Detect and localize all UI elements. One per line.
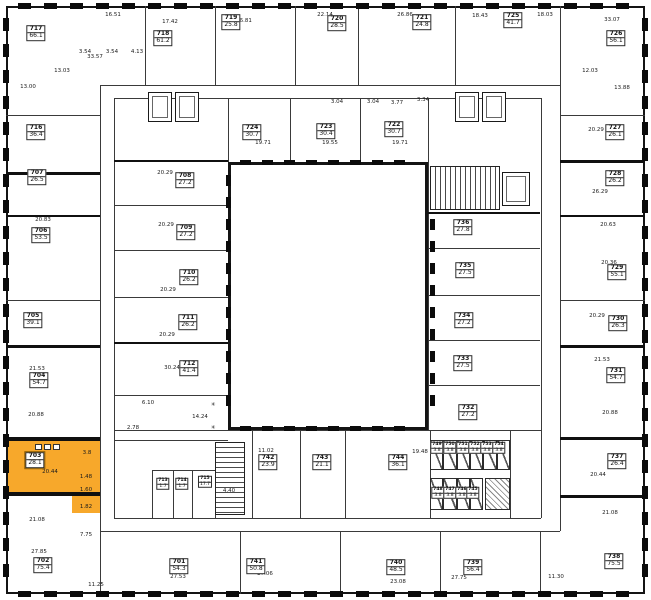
wall <box>428 212 540 214</box>
window-tick <box>382 3 395 9</box>
unit-area: 3.8 <box>431 449 442 454</box>
unit-area: 3.8 <box>444 494 455 499</box>
room-area-text: 4.40 <box>223 488 235 494</box>
unit-area: 41.4 <box>180 369 197 375</box>
window-tick <box>642 226 648 239</box>
window-tick <box>240 160 251 165</box>
unit-area: 26.2 <box>179 323 196 329</box>
window-tick <box>642 538 648 551</box>
room-area-text: 2.78 <box>127 425 139 431</box>
window-tick <box>642 382 648 395</box>
wall <box>114 297 228 298</box>
window-tick <box>642 460 648 473</box>
window-tick <box>430 351 435 362</box>
unit-label-717[interactable]: 71766.1 <box>26 25 45 41</box>
unit-label-722[interactable]: 72230.7 <box>384 121 403 137</box>
room-area-text: 26.86 <box>397 12 413 18</box>
window-tick <box>372 160 383 165</box>
window-tick <box>122 3 135 9</box>
unit-label-723[interactable]: 72330.4 <box>316 123 335 139</box>
window-tick <box>148 3 161 9</box>
window-tick <box>3 226 9 239</box>
kitchen-fixture <box>53 444 60 450</box>
window-tick <box>642 434 648 447</box>
window-tick <box>3 330 9 343</box>
unit-label-702[interactable]: 70275.4 <box>33 557 52 573</box>
wall <box>428 98 429 162</box>
window-tick <box>226 263 231 274</box>
unit-label-710[interactable]: 71026.2 <box>179 269 198 285</box>
window-tick <box>122 591 135 597</box>
window-tick <box>278 3 291 9</box>
unit-label-739[interactable]: 73956.4 <box>463 559 482 575</box>
room-area-text: 17.42 <box>162 19 178 25</box>
unit-area: 56.4 <box>464 568 481 574</box>
wall <box>100 531 560 532</box>
unit-area: 61.2 <box>154 39 171 45</box>
unit-label-732[interactable]: 73227.2 <box>458 404 477 420</box>
unit-label-729[interactable]: 72955.1 <box>607 264 626 280</box>
window-tick <box>486 591 499 597</box>
wall <box>114 160 228 162</box>
wall <box>428 248 540 249</box>
wall <box>290 98 291 162</box>
room-area-text: 3.77 <box>391 100 403 106</box>
room-area-text: 20.29 <box>589 313 605 319</box>
window-tick <box>328 160 339 165</box>
elevator <box>455 92 479 122</box>
unit-area: 75.5 <box>605 562 622 568</box>
room-area-text: 27.53 <box>170 574 186 580</box>
unit-area: 26.5 <box>28 178 45 184</box>
unit-area: 66.1 <box>27 34 44 40</box>
unit-label-707[interactable]: 70726.5 <box>27 169 46 185</box>
unit-area: 75.4 <box>34 566 51 572</box>
unit-label-721[interactable]: 72124.8 <box>412 14 431 30</box>
wall <box>340 531 341 594</box>
unit-area: 36.1 <box>389 463 406 469</box>
unit-area: 27.2 <box>455 321 472 327</box>
unit-label-743[interactable]: 74321.1 <box>312 454 331 470</box>
window-tick <box>642 408 648 421</box>
wall <box>428 295 540 296</box>
window-tick <box>226 373 231 384</box>
room-area-text: 20.83 <box>35 217 51 223</box>
window-tick <box>356 3 369 9</box>
window-tick <box>3 44 9 57</box>
unit-area: 50.8 <box>247 567 264 573</box>
window-tick <box>616 591 629 597</box>
wall <box>358 6 359 85</box>
unit-area: 26.3 <box>609 324 626 330</box>
unit-area: 21.1 <box>313 463 330 469</box>
window-tick <box>3 304 9 317</box>
window-tick <box>3 252 9 265</box>
window-tick <box>3 278 9 291</box>
unit-area: 1.7 <box>176 485 187 490</box>
unit-label-715[interactable]: 71517.7 <box>198 476 212 488</box>
window-tick <box>430 219 435 230</box>
unit-label-709[interactable]: 70927.2 <box>176 224 195 240</box>
unit-area: 26.2 <box>606 179 623 185</box>
room-area-text: 18.03 <box>537 12 553 18</box>
window-tick <box>642 96 648 109</box>
window-tick <box>226 395 231 406</box>
wall <box>560 160 645 163</box>
window-tick <box>226 591 239 597</box>
window-tick <box>430 395 435 406</box>
unit-area: 3.8 <box>481 449 492 454</box>
room-area-text: 3.54 <box>79 49 91 55</box>
window-tick <box>460 3 473 9</box>
window-tick <box>642 200 648 213</box>
room-area-text: 3.04 <box>331 99 343 105</box>
unit-area: 27.8 <box>454 228 471 234</box>
wall <box>428 340 540 341</box>
window-tick <box>538 591 551 597</box>
window-tick <box>252 591 265 597</box>
wall <box>145 6 146 85</box>
unit-area: 54.7 <box>607 376 624 382</box>
room-area-text: 21.08 <box>29 517 45 523</box>
unit-area: 3.8 <box>444 449 455 454</box>
wall <box>152 470 153 518</box>
unit-label-713[interactable]: 7131.7 <box>156 478 169 490</box>
unit-label-705[interactable]: 70539.1 <box>23 312 42 328</box>
window-tick <box>226 285 231 296</box>
room-area-text: 3.54 <box>106 49 118 55</box>
window-tick <box>278 591 291 597</box>
window-tick <box>70 591 83 597</box>
window-tick <box>3 382 9 395</box>
unit-label-725[interactable]: 72541.7 <box>503 12 522 28</box>
window-tick <box>430 285 435 296</box>
room-area-text: 11.30 <box>548 574 564 580</box>
window-tick <box>226 175 231 186</box>
window-tick <box>226 351 231 362</box>
window-tick <box>590 3 603 9</box>
window-tick <box>512 3 525 9</box>
wall <box>100 85 101 531</box>
room-area-text: 20.29 <box>158 222 174 228</box>
unit-area: 53.5 <box>32 236 49 242</box>
window-tick <box>3 434 9 447</box>
wall <box>295 6 296 85</box>
window-tick <box>3 486 9 499</box>
wall <box>114 342 228 344</box>
wall <box>215 6 216 85</box>
wall <box>300 430 301 518</box>
unit-label-754[interactable]: 7543.8 <box>492 442 505 454</box>
unit-label-719[interactable]: 71925.8 <box>221 14 240 30</box>
window-tick <box>564 3 577 9</box>
window-tick <box>486 3 499 9</box>
wall <box>152 470 218 471</box>
window-tick <box>18 3 31 9</box>
room-area-text: 13.03 <box>54 68 70 74</box>
window-tick <box>642 18 648 31</box>
unit-label-740[interactable]: 74048.5 <box>386 559 405 575</box>
unit-label-744[interactable]: 74436.1 <box>388 454 407 470</box>
unit-area: 27.5 <box>454 364 471 370</box>
unit-label-720[interactable]: 72028.5 <box>327 15 346 31</box>
window-tick <box>44 591 57 597</box>
unit-label-724[interactable]: 72430.7 <box>242 124 261 140</box>
unit-label-718[interactable]: 71861.2 <box>153 30 172 46</box>
wall <box>240 531 241 594</box>
wall <box>345 430 346 518</box>
window-tick <box>226 307 231 318</box>
room-area-text: 1.82 <box>80 504 92 510</box>
wall <box>114 250 228 251</box>
room-area-text: 3.04 <box>367 99 379 105</box>
window-tick <box>44 3 57 9</box>
window-tick <box>350 426 361 431</box>
unit-label-704[interactable]: 70454.7 <box>29 372 48 388</box>
window-tick <box>642 148 648 161</box>
room-area-text: 27.85 <box>31 549 47 555</box>
wall <box>510 430 511 518</box>
wall <box>560 115 645 116</box>
room-area-text: 3.8 <box>83 450 92 456</box>
unit-area: 3.8 <box>493 449 504 454</box>
room-area-text: 19.55 <box>322 140 338 146</box>
window-tick <box>96 3 109 9</box>
unit-label-701[interactable]: 70154.3 <box>169 558 188 574</box>
unit-area: 27.5 <box>456 271 473 277</box>
unit-label-712[interactable]: 71241.4 <box>179 360 198 376</box>
wall <box>6 215 100 217</box>
window-tick <box>430 263 435 274</box>
unit-label-734[interactable]: 73427.2 <box>454 312 473 328</box>
window-tick <box>372 426 383 431</box>
window-tick <box>200 591 213 597</box>
window-tick <box>434 591 447 597</box>
kitchen-fixture <box>35 444 42 450</box>
window-tick <box>460 591 473 597</box>
room-area-text: 6.10 <box>142 400 154 406</box>
window-tick <box>616 3 629 9</box>
room-area-text: 19.71 <box>392 140 408 146</box>
unit-area: 28.5 <box>328 24 345 30</box>
wall <box>6 300 100 301</box>
room-area-text: 20.44 <box>42 469 58 475</box>
unit-label-730[interactable]: 73026.3 <box>608 315 627 331</box>
wall <box>6 437 100 441</box>
window-tick <box>642 356 648 369</box>
elevator <box>482 92 506 122</box>
unit-area: 54.7 <box>30 381 47 387</box>
wall <box>560 300 645 301</box>
window-tick <box>434 3 447 9</box>
room-area-text: 27.75 <box>451 575 467 581</box>
unit-label-733[interactable]: 73327.5 <box>453 355 472 371</box>
room-area-text: 20.63 <box>600 222 616 228</box>
unit-label-727[interactable]: 72726.1 <box>605 124 624 140</box>
wall <box>428 385 540 386</box>
room-area-text: 1.60 <box>80 487 92 493</box>
unit-label-750[interactable]: 7503.8 <box>443 442 456 454</box>
wall <box>541 98 542 518</box>
unit-area: 26.1 <box>606 133 623 139</box>
unit-area: 3.8 <box>469 449 480 454</box>
window-tick <box>226 197 231 208</box>
unit-label-731[interactable]: 73154.7 <box>606 367 625 383</box>
window-tick <box>3 538 9 551</box>
unit-area: 3.8 <box>457 449 468 454</box>
room-area-text: 19.71 <box>255 140 271 146</box>
wall <box>6 345 100 348</box>
window-tick <box>240 426 251 431</box>
unit-label-749[interactable]: 7493.8 <box>430 442 443 454</box>
room-area-text: 23.08 <box>390 579 406 585</box>
unit-area: 48.5 <box>387 568 404 574</box>
room-area-text: 16.51 <box>105 12 121 18</box>
unit-area: 30.4 <box>317 132 334 138</box>
window-tick <box>430 329 435 340</box>
window-tick <box>430 373 435 384</box>
unit-label-716[interactable]: 71636.4 <box>26 124 45 140</box>
unit-label-714[interactable]: 7141.7 <box>175 478 188 490</box>
window-tick <box>18 591 31 597</box>
staircase <box>215 442 245 515</box>
unit-area: 27.2 <box>459 413 476 419</box>
unit-area: 24.8 <box>413 23 430 29</box>
unit-label-735[interactable]: 73527.5 <box>455 262 474 278</box>
unit-area: 54.3 <box>170 567 187 573</box>
room-area-text: 12.03 <box>582 68 598 74</box>
wall <box>114 518 541 519</box>
wall <box>560 345 645 348</box>
unit-area: 25.8 <box>222 23 239 29</box>
window-tick <box>3 148 9 161</box>
window-tick <box>430 241 435 252</box>
unit-label-738[interactable]: 73875.5 <box>604 553 623 569</box>
wall <box>252 430 253 518</box>
window-tick <box>304 3 317 9</box>
window-tick <box>564 591 577 597</box>
unit-label-745[interactable]: 7453.8 <box>466 487 479 499</box>
unit-label-742[interactable]: 74223.9 <box>258 454 277 470</box>
window-tick <box>284 426 295 431</box>
window-tick <box>642 70 648 83</box>
unit-label-737[interactable]: 73726.4 <box>607 453 626 469</box>
window-tick <box>3 460 9 473</box>
unit-label-708[interactable]: 70827.2 <box>175 172 194 188</box>
window-tick <box>306 426 317 431</box>
window-tick <box>3 564 9 577</box>
elevator <box>148 92 172 122</box>
window-tick <box>226 329 231 340</box>
wall <box>540 531 541 594</box>
window-tick <box>262 160 273 165</box>
wall <box>6 172 100 175</box>
wall <box>173 470 174 518</box>
wall <box>560 495 645 498</box>
unit-label-741[interactable]: 74150.8 <box>246 558 265 574</box>
courtyard <box>228 162 428 430</box>
unit-label-703[interactable]: 70328.1 <box>25 452 44 468</box>
room-area-text: 21.53 <box>29 366 45 372</box>
unit-label-728[interactable]: 72826.2 <box>605 170 624 186</box>
unit-area: 55.1 <box>608 273 625 279</box>
window-tick <box>408 3 421 9</box>
wall <box>228 98 229 162</box>
room-area-text: 20.88 <box>28 412 44 418</box>
unit-area: 30.7 <box>385 130 402 136</box>
unit-area: 36.4 <box>27 133 44 139</box>
room-area-text: 26.29 <box>592 189 608 195</box>
mech-room <box>485 478 510 510</box>
unit-label-736[interactable]: 73627.8 <box>453 219 472 235</box>
window-tick <box>3 200 9 213</box>
window-tick <box>642 252 648 265</box>
wall <box>560 437 645 440</box>
window-tick <box>408 591 421 597</box>
room-area-text: 30.24 <box>164 365 180 371</box>
unit-area: 27.2 <box>176 181 193 187</box>
window-tick <box>226 241 231 252</box>
window-tick <box>330 3 343 9</box>
wall <box>6 115 100 116</box>
room-area-text: 20.29 <box>157 170 173 176</box>
window-tick <box>70 3 83 9</box>
window-tick <box>306 160 317 165</box>
window-tick <box>394 160 405 165</box>
room-area-text: 13.88 <box>614 85 630 91</box>
window-tick <box>642 512 648 525</box>
unit-label-726[interactable]: 72656.1 <box>606 30 625 46</box>
room-area-text: ✳ <box>211 425 216 431</box>
window-tick <box>174 591 187 597</box>
window-tick <box>3 18 9 31</box>
wall <box>560 6 561 85</box>
elevator <box>502 172 530 206</box>
window-tick <box>304 591 317 597</box>
window-tick <box>284 160 295 165</box>
room-area-text: 1.48 <box>80 474 92 480</box>
room-area-text: 19.48 <box>412 449 428 455</box>
unit-area: 30.7 <box>243 133 260 139</box>
room-area-text: 21.53 <box>594 357 610 363</box>
wall <box>114 205 228 206</box>
window-tick <box>252 3 265 9</box>
window-tick <box>3 70 9 83</box>
wall <box>360 98 361 162</box>
window-tick <box>350 160 361 165</box>
room-area-text: 4.13 <box>131 49 143 55</box>
wall <box>560 215 645 217</box>
room-area-text: 3.34 <box>417 97 429 103</box>
room-area-text: 20.88 <box>602 410 618 416</box>
window-tick <box>356 591 369 597</box>
wall <box>440 531 441 594</box>
wall <box>560 85 561 531</box>
window-tick <box>642 304 648 317</box>
window-tick <box>3 122 9 135</box>
window-tick <box>3 356 9 369</box>
unit-area: 39.1 <box>24 321 41 327</box>
window-tick <box>262 426 273 431</box>
elevator <box>175 92 199 122</box>
unit-label-711[interactable]: 71126.2 <box>178 314 197 330</box>
unit-area: 56.1 <box>607 39 624 45</box>
unit-label-706[interactable]: 70653.5 <box>31 227 50 243</box>
room-area-text: 11.25 <box>88 582 104 588</box>
window-tick <box>200 3 213 9</box>
unit-area: 26.2 <box>180 278 197 284</box>
window-tick <box>538 3 551 9</box>
